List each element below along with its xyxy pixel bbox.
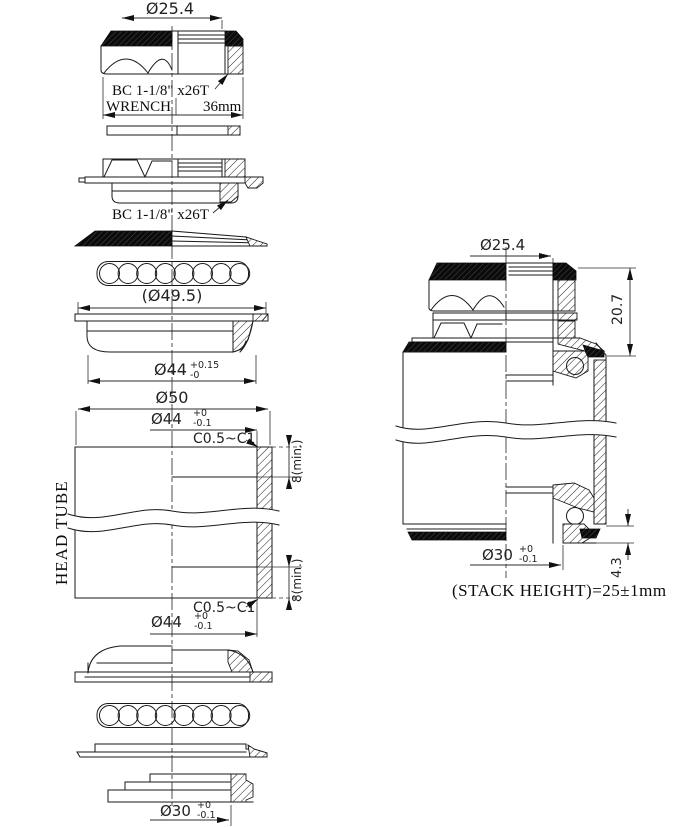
crown-race-part: Ø30 +0 -0.1 — [108, 774, 253, 826]
dim-head-tube-od: Ø50 — [156, 388, 189, 407]
dim-upper-cup-tol-minus: -0 — [190, 370, 199, 381]
bearing-ball — [137, 264, 157, 284]
headset-technical-drawing: Ø25.4 BC 1-1/8" x26T WRENCH 36mm BC 1-1/… — [0, 0, 700, 827]
bearing-ball — [100, 264, 120, 284]
locknut-knurl-section — [225, 31, 243, 46]
dim-bore-top: Ø44 — [151, 410, 182, 428]
drawing-canvas: Ø25.4 BC 1-1/8" x26T WRENCH 36mm BC 1-1/… — [0, 0, 700, 827]
assembled-washer-section — [558, 313, 577, 320]
bearing-ball — [230, 706, 250, 726]
lock-washer-part — [107, 126, 240, 135]
dim-bore-depth-top: 8(min.) — [290, 440, 304, 483]
locknut-knurl-band — [101, 31, 172, 46]
assembled-lower-seal-tip — [580, 529, 600, 538]
thread-leader-line — [215, 74, 228, 89]
lower-cup-flange-section — [250, 672, 272, 682]
upper-head-cup-part: Ø44 +0.15 -0 — [75, 314, 268, 384]
dim-bore-bottom: Ø44 — [151, 613, 182, 631]
assembled-upper-seal — [403, 342, 506, 352]
bearing-ball — [137, 706, 157, 726]
upper-seal-part — [75, 231, 267, 246]
dim-crown-tol-minus: -0.1 — [197, 810, 216, 821]
dim-bore-top-tol-minus: -0.1 — [193, 418, 212, 429]
bearing-ball — [211, 264, 231, 284]
upper-seal-body — [75, 231, 172, 246]
dim-crown-bore: Ø30 — [160, 802, 191, 820]
assembled-locknut-wall — [558, 280, 575, 311]
dim-locknut-od: Ø25.4 — [146, 0, 194, 18]
lower-bearing-ball — [567, 508, 584, 525]
crown-race-section — [231, 774, 253, 802]
assembled-lower-seal — [408, 532, 506, 540]
assembled-locknut-knurl-section — [553, 263, 576, 280]
dim-upper-stack: 20.7 — [610, 294, 626, 325]
upper-cup-flange-section — [253, 314, 268, 321]
cup-wall-section — [225, 159, 245, 177]
locknut-thread-label: BC 1-1/8" x26T — [112, 83, 209, 99]
dim-upper-cup-od: Ø44 — [154, 360, 187, 379]
head-tube-part: Ø50 Ø44 +0 -0.1 C0.5~C1 8(min.) 8(min.) … — [52, 388, 304, 637]
assembled-cup-wall — [558, 321, 575, 338]
upper-seal-tip-section — [246, 237, 267, 246]
bearing-ball — [230, 264, 250, 284]
bearing-ball — [193, 706, 213, 726]
bearing-ball — [118, 264, 138, 284]
bearing-ball — [118, 706, 138, 726]
locknut-wall-section — [228, 46, 243, 74]
dim-bore-bottom-tol-minus: -0.1 — [194, 621, 213, 632]
lower-cup-wall-section — [228, 650, 253, 672]
dim-lower-stack: 4.3 — [610, 557, 625, 578]
wrench-size-label: 36mm — [203, 99, 242, 115]
dim-steerer-od: Ø25.4 — [480, 236, 525, 254]
assembled-locknut-knurl — [429, 263, 506, 280]
wrench-label: WRENCH — [106, 99, 171, 115]
lower-seal-tip-section — [248, 745, 267, 757]
assembled-head-tube-wall — [594, 360, 606, 524]
adjustable-cup-part: BC 1-1/8" x26T — [79, 159, 263, 223]
bearing-ball — [100, 706, 120, 726]
upper-cup-wall-section — [233, 321, 253, 352]
assembled-view: Ø25.4 — [396, 236, 667, 600]
bearing-ball — [174, 706, 194, 726]
lower-ball-retainer — [97, 704, 250, 728]
cup-lower-section — [220, 183, 238, 202]
cup-flange-section — [245, 177, 263, 188]
bearing-ball — [174, 264, 194, 284]
cup-thread-label: BC 1-1/8" x26T — [112, 207, 209, 223]
dim-crown-tol-minus-assembled: -0.1 — [519, 554, 538, 565]
bearing-ball — [211, 706, 231, 726]
dim-crown-bore-assembled: Ø30 — [482, 546, 513, 564]
head-tube-label: HEAD TUBE — [52, 480, 71, 585]
stack-height-note: (STACK HEIGHT)=25±1mm — [452, 581, 667, 600]
chamfer-top-label: C0.5~C1 — [193, 431, 255, 447]
washer-section — [228, 126, 240, 135]
dim-bore-depth-bottom: 8(min.) — [290, 559, 304, 602]
assembled-upper-cup-section — [553, 351, 588, 378]
dim-ball-circle: (Ø49.5) — [142, 286, 203, 305]
lower-head-cup-part — [75, 646, 272, 682]
bearing-ball — [193, 264, 213, 284]
